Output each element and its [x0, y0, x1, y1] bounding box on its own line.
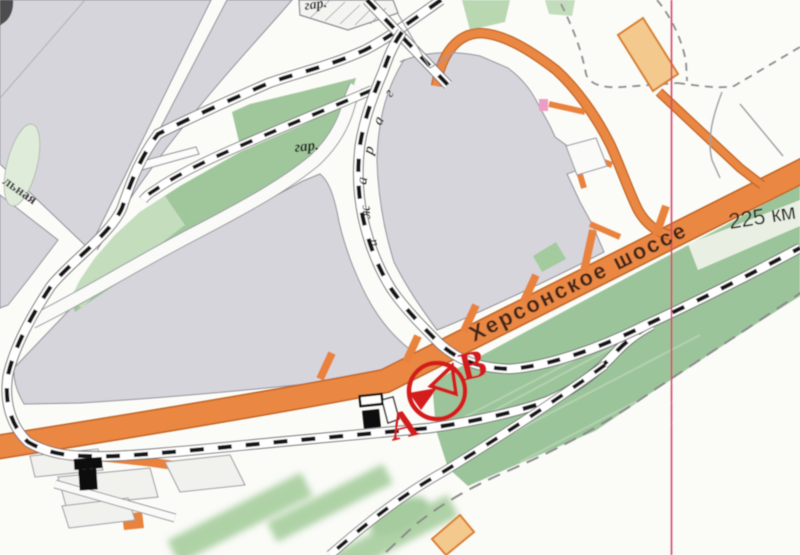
svg-text:ж: ж: [358, 205, 374, 220]
svg-text:гар.: гар.: [294, 138, 320, 156]
